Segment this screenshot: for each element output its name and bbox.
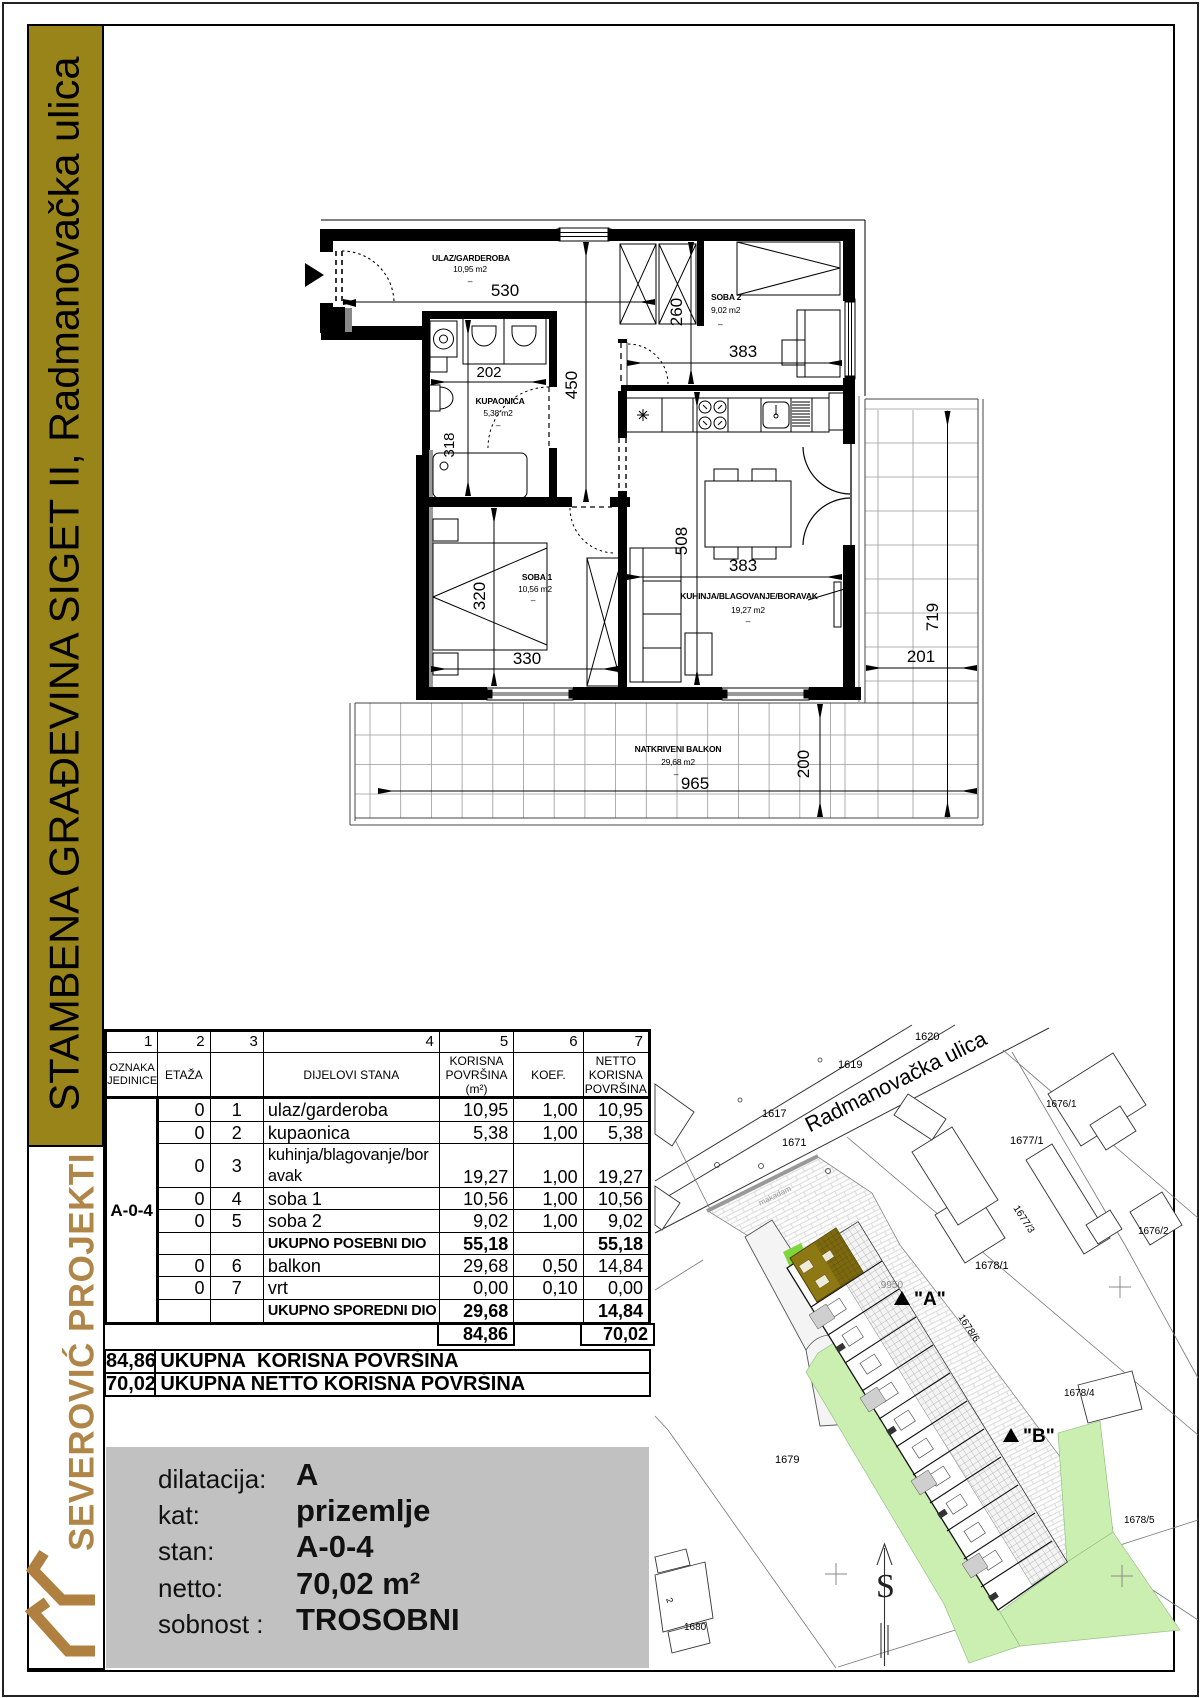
- svg-text:NATKRIVENI BALKON: NATKRIVENI BALKON: [635, 744, 722, 754]
- svg-text:KUPAONICA: KUPAONICA: [475, 396, 524, 406]
- svg-text:9,02 m2: 9,02 m2: [711, 305, 741, 315]
- svg-text:508: 508: [672, 527, 691, 555]
- svg-text:1676/2: 1676/2: [1138, 1226, 1169, 1237]
- svg-text:318: 318: [441, 432, 458, 457]
- svg-text:1678/5: 1678/5: [1124, 1515, 1155, 1526]
- svg-text:–: –: [531, 595, 536, 605]
- svg-text:202: 202: [476, 364, 501, 381]
- svg-text:320: 320: [470, 582, 489, 610]
- svg-text:10,56 m2: 10,56 m2: [518, 584, 552, 594]
- svg-text:965: 965: [681, 774, 709, 793]
- svg-text:530: 530: [491, 281, 519, 300]
- svg-text:"A": "A": [914, 1289, 946, 1310]
- svg-text:–: –: [718, 319, 723, 329]
- svg-text:19,27 m2: 19,27 m2: [731, 605, 765, 615]
- svg-text:1679: 1679: [775, 1454, 799, 1466]
- svg-text:10,95 m2: 10,95 m2: [453, 264, 487, 274]
- svg-text:–: –: [746, 616, 751, 626]
- svg-text:330: 330: [513, 649, 541, 668]
- svg-text:.9950: .9950: [878, 1280, 903, 1291]
- svg-text:719: 719: [923, 603, 942, 631]
- svg-text:STAMBENA GRAĐEVINA SIGET II, R: STAMBENA GRAĐEVINA SIGET II, Radmanovačk…: [41, 56, 88, 1112]
- svg-text:1617: 1617: [762, 1108, 786, 1120]
- svg-text:1619: 1619: [838, 1059, 862, 1071]
- svg-text:SOBA 1: SOBA 1: [522, 572, 553, 582]
- svg-text:–: –: [496, 420, 501, 430]
- svg-text:1620: 1620: [915, 1031, 939, 1043]
- svg-text:1677/3: 1677/3: [1010, 1204, 1036, 1236]
- svg-text:450: 450: [562, 371, 581, 399]
- svg-text:1677/1: 1677/1: [1010, 1135, 1044, 1147]
- svg-text:383: 383: [729, 556, 757, 575]
- svg-text:1671: 1671: [782, 1137, 806, 1149]
- svg-text:1680: 1680: [684, 1622, 707, 1633]
- svg-text:SEVEROVIĆ PROJEKTI: SEVEROVIĆ PROJEKTI: [62, 1153, 102, 1551]
- svg-text:5,38 m2: 5,38 m2: [483, 408, 513, 418]
- svg-text:S: S: [876, 1568, 895, 1605]
- svg-text:1676/1: 1676/1: [1046, 1099, 1077, 1110]
- svg-text:201: 201: [907, 647, 935, 666]
- svg-text:260: 260: [667, 298, 686, 326]
- svg-text:"B": "B": [1023, 1426, 1055, 1447]
- svg-text:–: –: [674, 769, 679, 779]
- svg-text:1678/1: 1678/1: [975, 1260, 1009, 1272]
- svg-text:200: 200: [794, 750, 813, 778]
- svg-text:29,68 m2: 29,68 m2: [661, 757, 695, 767]
- svg-text:383: 383: [729, 342, 757, 361]
- svg-text:–: –: [468, 276, 473, 286]
- svg-text:ULAZ/GARDEROBA: ULAZ/GARDEROBA: [432, 253, 510, 263]
- svg-text:SOBA 2: SOBA 2: [711, 292, 742, 302]
- svg-text:Radmanovačka ulica: Radmanovačka ulica: [801, 1026, 990, 1137]
- svg-text:KUHINJA/BLAGOVANJE/BORAVAK: KUHINJA/BLAGOVANJE/BORAVAK: [680, 591, 818, 601]
- svg-text:1678/4: 1678/4: [1064, 1388, 1095, 1399]
